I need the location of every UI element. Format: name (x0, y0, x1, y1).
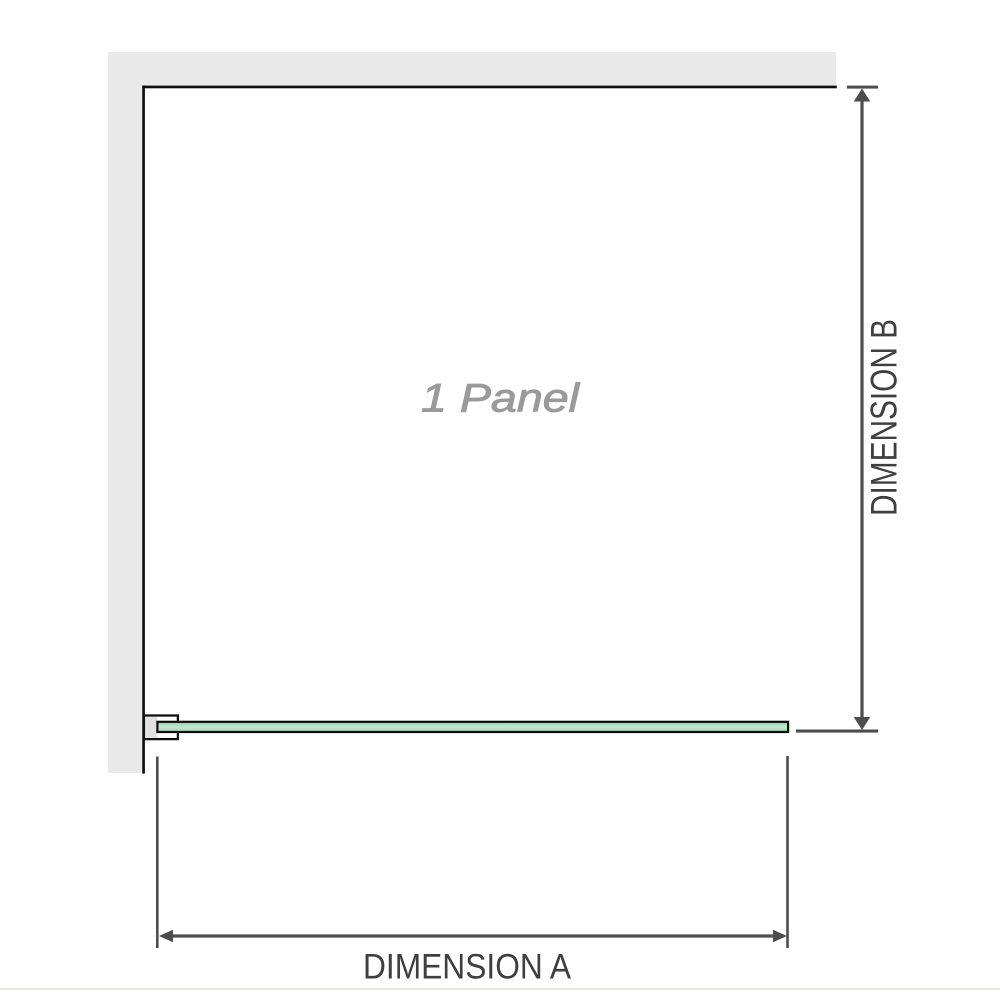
svg-text:DIMENSION B: DIMENSION B (864, 319, 905, 516)
svg-text:DIMENSION A: DIMENSION A (363, 948, 572, 987)
svg-text:1 Panel: 1 Panel (421, 377, 580, 421)
